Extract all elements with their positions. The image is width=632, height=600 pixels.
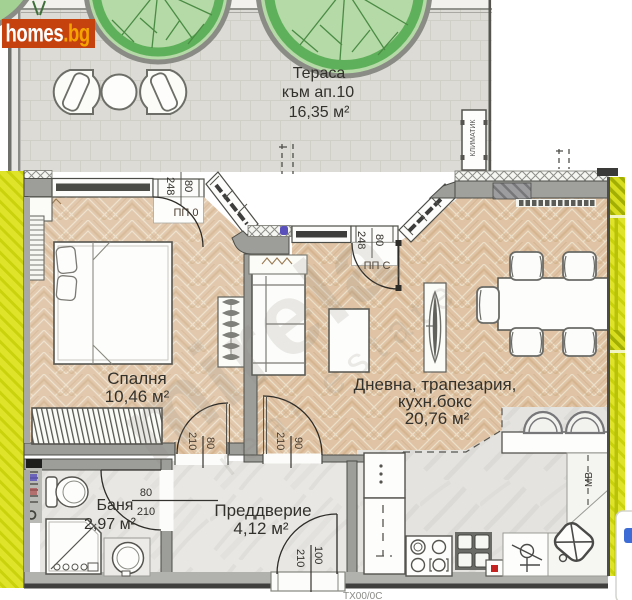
svg-text:към ап.10: към ап.10 [282, 84, 354, 101]
svg-text:16,35 м²: 16,35 м² [289, 104, 350, 121]
svg-text:20,76 м²: 20,76 м² [405, 409, 470, 428]
svg-text:80: 80 [182, 180, 194, 192]
svg-text:МВ: МВ [584, 472, 595, 487]
svg-text:2,97 м²: 2,97 м² [84, 516, 137, 533]
svg-text:Тераса: Тераса [293, 65, 346, 82]
svg-text:Баня: Баня [97, 497, 134, 514]
svg-text:100: 100 [312, 546, 324, 564]
svg-text:ТХ00/0С: ТХ00/0С [343, 591, 382, 600]
svg-text:homes: homes [6, 19, 64, 47]
svg-text:90: 90 [292, 437, 304, 449]
svg-text:210: 210 [294, 549, 306, 567]
svg-text:ПП 0: ПП 0 [174, 207, 199, 219]
svg-text:80: 80 [140, 487, 152, 499]
svg-text:4,12 м²: 4,12 м² [233, 519, 288, 538]
svg-text:.bg: .bg [63, 19, 90, 47]
svg-text:КЛИМАТИК: КЛИМАТИК [470, 119, 477, 157]
svg-text:Преддверие: Преддверие [214, 501, 311, 520]
svg-text:248: 248 [164, 177, 176, 195]
svg-text:210: 210 [137, 506, 155, 518]
